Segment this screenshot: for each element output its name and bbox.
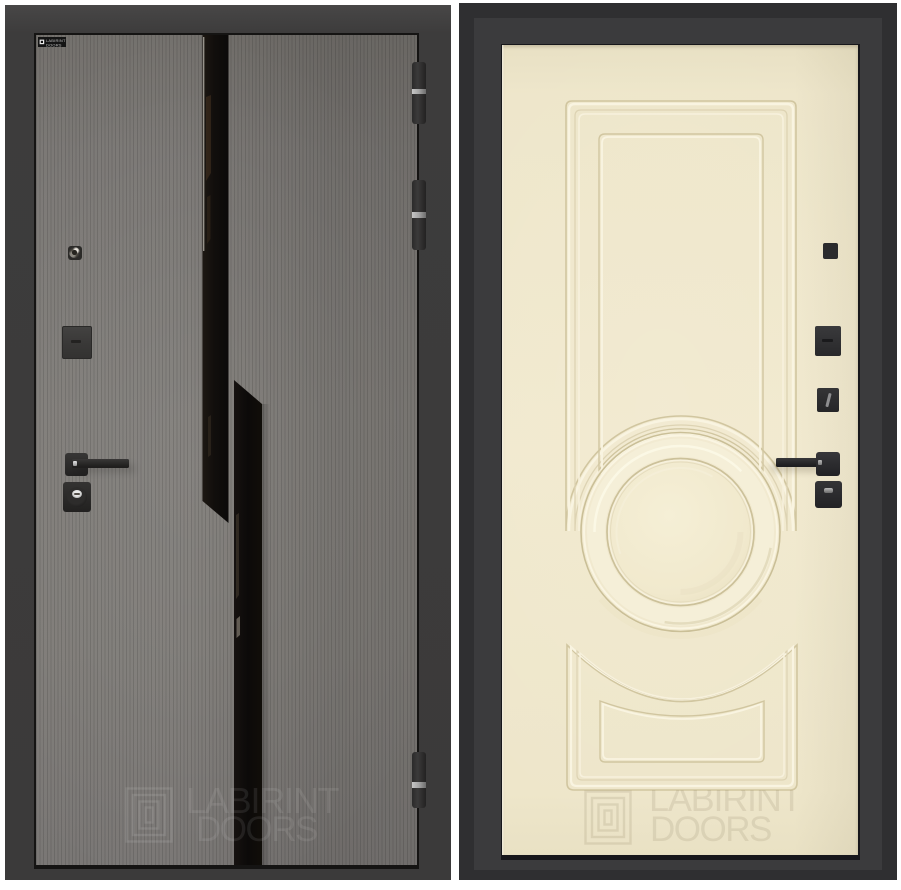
- svg-text:DOORS: DOORS: [46, 42, 62, 47]
- svg-text:DOORS: DOORS: [196, 810, 317, 849]
- svg-text:DOORS: DOORS: [650, 810, 771, 849]
